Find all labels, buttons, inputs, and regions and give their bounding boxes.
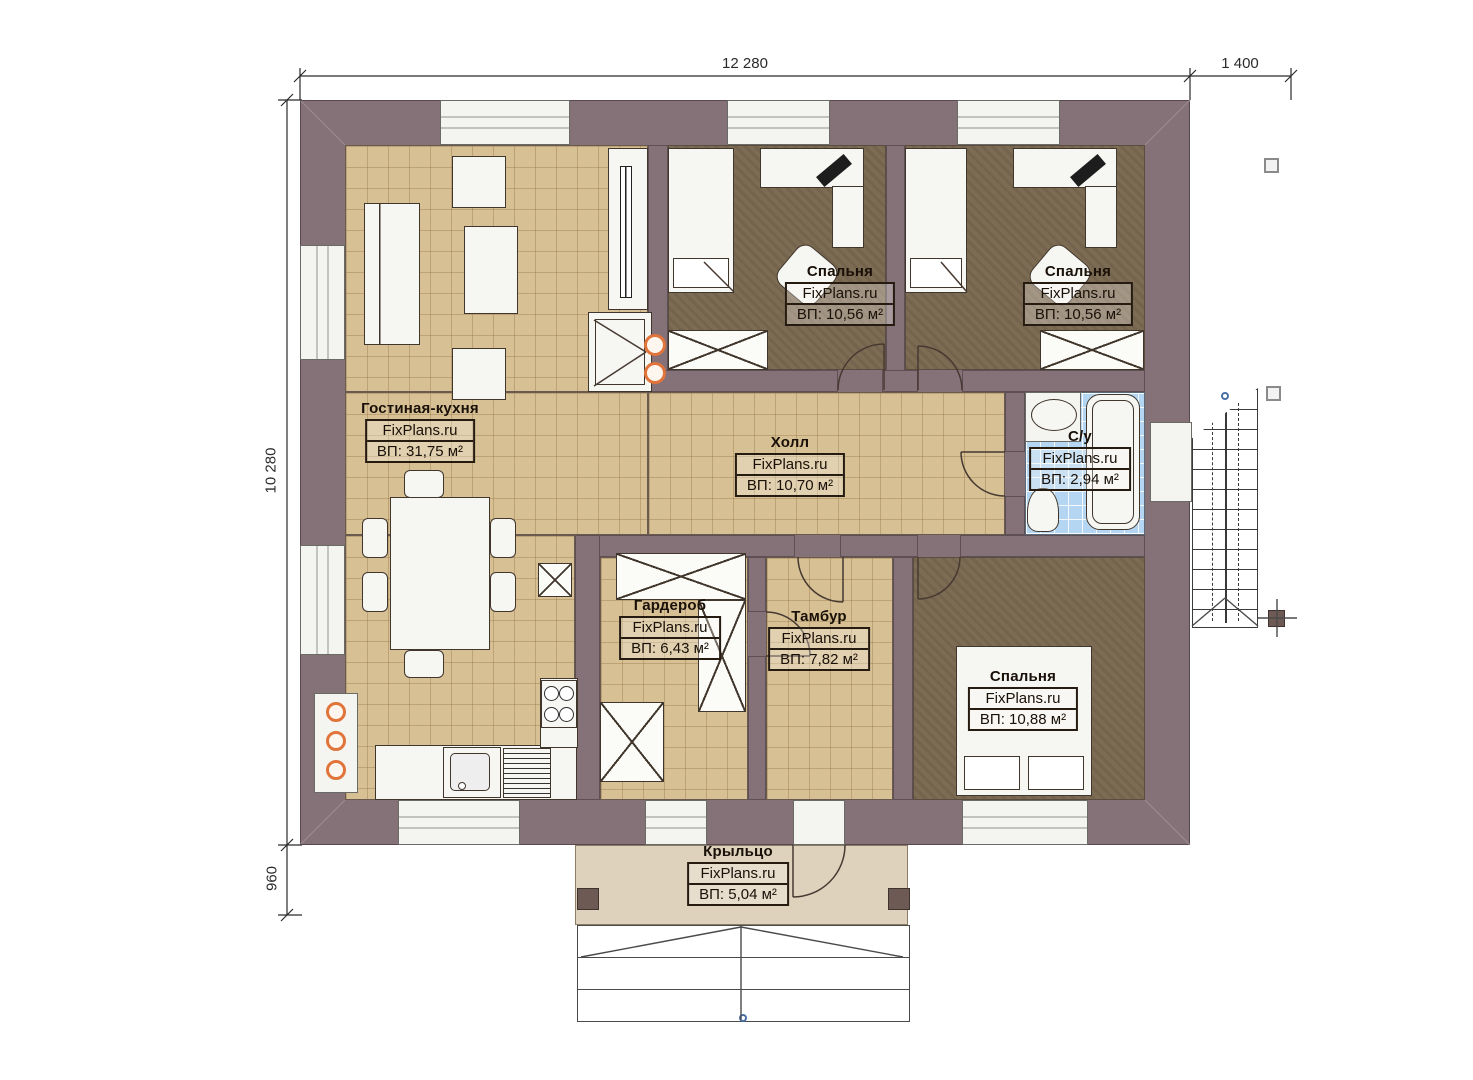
stove-burner: [544, 686, 559, 701]
bath-sink: [1031, 399, 1077, 431]
room-label-bedroom-2: Спальня FixPlans.ru ВП: 10,56 м²: [1023, 263, 1133, 326]
stove-burner: [559, 707, 574, 722]
porch-post-right: [888, 888, 910, 910]
armchair-bottom: [452, 348, 506, 400]
kitchen-sink: [443, 747, 501, 798]
room-label-bathroom: С/у FixPlans.ru ВП: 2,94 м²: [1029, 428, 1131, 491]
marker-square-stairs-bottom: [1268, 610, 1285, 627]
room-label-bedroom-1: Спальня FixPlans.ru ВП: 10,56 м²: [785, 263, 895, 326]
dim-width-total: 12 280: [722, 55, 768, 72]
fireplace: [588, 312, 652, 392]
room-name: Гардероб: [619, 597, 721, 614]
bed-3-pillow-right: [1028, 756, 1084, 790]
window-kitchen-bottom: [398, 800, 520, 845]
brand-watermark: FixPlans.ru: [770, 629, 868, 650]
wardrobe-cabinet-bottom: [600, 702, 664, 782]
window-vestibule-bottom: [645, 800, 707, 845]
room-area: ВП: 5,04 м²: [689, 885, 787, 904]
dining-chair-right-2: [490, 572, 516, 612]
window-living-left-1: [300, 245, 345, 360]
porch-post-left: [577, 888, 599, 910]
wall-bedrooms-hall-c: [962, 370, 1145, 392]
room-name: Холл: [735, 434, 845, 451]
room-info-box: FixPlans.ru ВП: 10,56 м²: [1023, 282, 1133, 326]
stove: [541, 680, 577, 728]
porch-steps: [577, 925, 910, 1022]
coffee-table: [464, 226, 518, 314]
room-label-vestibule: Тамбур FixPlans.ru ВП: 7,82 м²: [768, 608, 870, 671]
panel-circle-3: [326, 760, 346, 780]
bed-2-pillow: [910, 258, 962, 288]
wall-vestibule-bed3: [893, 557, 913, 800]
armchair-top: [452, 156, 506, 208]
room-area: ВП: 10,56 м²: [1025, 305, 1131, 324]
vestibule-floor: [766, 557, 893, 800]
room-area: ВП: 10,56 м²: [787, 305, 893, 324]
desk-2: [1013, 148, 1117, 188]
dining-chair-bottom: [404, 650, 444, 678]
room-name: Спальня: [1023, 263, 1133, 280]
bed-1-pillow: [673, 258, 729, 288]
brand-watermark: FixPlans.ru: [737, 455, 843, 476]
room-name: Спальня: [785, 263, 895, 280]
desk-1-return: [832, 186, 864, 248]
room-info-box: FixPlans.ru ВП: 2,94 м²: [1029, 447, 1131, 491]
room-label-wardrobe: Гардероб FixPlans.ru ВП: 6,43 м²: [619, 597, 721, 660]
room-info-box: FixPlans.ru ВП: 10,88 м²: [968, 687, 1078, 731]
dim-height-total: 10 280: [263, 448, 280, 494]
wall-bedrooms-hall-b: [882, 370, 918, 392]
brand-watermark: FixPlans.ru: [970, 689, 1076, 710]
window-living-left-2: [300, 545, 345, 655]
side-door-opening: [1150, 422, 1192, 502]
wall-bedrooms-hall-a: [648, 370, 838, 392]
steps-marker-dot: [739, 1014, 747, 1022]
wall-wardrobe-vestibule-b: [748, 656, 766, 800]
side-stairs: [1192, 388, 1258, 628]
panel-circle-2: [326, 731, 346, 751]
room-name: С/у: [1029, 428, 1131, 445]
room-name: Тамбур: [768, 608, 870, 625]
room-name: Гостиная-кухня: [361, 400, 479, 417]
floor-plan: 12 280 1 400 10 280 960 Гостиная-кухня F…: [0, 0, 1473, 1080]
wardrobe-cabinet-top: [616, 553, 746, 600]
wall-hall-south-b: [840, 535, 918, 557]
window-bed1-top: [727, 100, 830, 145]
stairs-marker-dot: [1221, 392, 1229, 400]
window-living-top: [440, 100, 570, 145]
brand-watermark: FixPlans.ru: [689, 864, 787, 885]
dim-stair-width: 1 400: [1221, 55, 1259, 72]
front-door-opening: [793, 800, 845, 845]
room-label-bedroom-3: Спальня FixPlans.ru ВП: 10,88 м²: [968, 668, 1078, 731]
room-area: ВП: 31,75 м²: [367, 442, 473, 461]
wardrobe-bed1: [668, 330, 768, 370]
dining-chair-left-1: [362, 518, 388, 558]
desk-1: [760, 148, 864, 188]
toilet: [1027, 488, 1059, 532]
room-area: ВП: 10,88 м²: [970, 710, 1076, 729]
tv-panel: [620, 166, 632, 298]
brand-watermark: FixPlans.ru: [787, 284, 893, 305]
stairs-guide-right: [1238, 403, 1239, 621]
desk-2-return: [1085, 186, 1117, 248]
room-info-box: FixPlans.ru ВП: 10,56 м²: [785, 282, 895, 326]
bed-1: [668, 148, 734, 293]
dining-chair-top: [404, 470, 444, 498]
room-info-box: FixPlans.ru ВП: 10,70 м²: [735, 453, 845, 497]
room-name: Крыльцо: [687, 843, 789, 860]
wall-wardrobe-vestibule-a: [748, 557, 766, 612]
room-name: Спальня: [968, 668, 1078, 685]
sofa: [364, 203, 420, 345]
dining-table: [390, 497, 490, 650]
brand-watermark: FixPlans.ru: [367, 421, 473, 442]
room-info-box: FixPlans.ru ВП: 5,04 м²: [687, 862, 789, 906]
room-label-living-kitchen: Гостиная-кухня FixPlans.ru ВП: 31,75 м²: [361, 400, 479, 463]
room-area: ВП: 2,94 м²: [1031, 470, 1129, 489]
room-area: ВП: 6,43 м²: [621, 639, 719, 658]
window-bed3-bottom: [962, 800, 1088, 845]
wall-hall-bath-b: [1005, 496, 1025, 535]
vent-circle-1: [644, 334, 666, 356]
wall-hall-south-c: [960, 535, 1145, 557]
window-bed2-top: [957, 100, 1060, 145]
stove-burner: [559, 686, 574, 701]
kitchen-faucet: [458, 782, 466, 790]
room-label-porch: Крыльцо FixPlans.ru ВП: 5,04 м²: [687, 843, 789, 906]
dining-chair-right-1: [490, 518, 516, 558]
dim-porch-depth: 960: [264, 862, 281, 896]
dining-chair-left-2: [362, 572, 388, 612]
brand-watermark: FixPlans.ru: [1031, 449, 1129, 470]
panel-circle-1: [326, 702, 346, 722]
marker-square-topright: [1264, 158, 1279, 173]
room-area: ВП: 7,82 м²: [770, 650, 868, 669]
bed-2: [905, 148, 967, 293]
wardrobe-bed2: [1040, 330, 1144, 370]
room-info-box: FixPlans.ru ВП: 31,75 м²: [365, 419, 475, 463]
bed-3-pillow-left: [964, 756, 1020, 790]
brand-watermark: FixPlans.ru: [1025, 284, 1131, 305]
vent-shaft: [538, 563, 572, 597]
room-area: ВП: 10,70 м²: [737, 476, 843, 495]
room-info-box: FixPlans.ru ВП: 6,43 м²: [619, 616, 721, 660]
wall-living-wardrobe: [575, 535, 600, 800]
wall-hall-bath-a: [1005, 392, 1025, 452]
brand-watermark: FixPlans.ru: [621, 618, 719, 639]
room-label-hall: Холл FixPlans.ru ВП: 10,70 м²: [735, 434, 845, 497]
stairs-center-line: [1225, 397, 1227, 623]
marker-square-stairs-top: [1266, 386, 1281, 401]
dish-rack: [503, 748, 551, 798]
stairs-guide-left: [1212, 422, 1213, 621]
room-info-box: FixPlans.ru ВП: 7,82 м²: [768, 627, 870, 671]
fireplace-inner: [595, 319, 645, 385]
kitchen-sink-basin: [450, 753, 490, 791]
vent-circle-2: [644, 362, 666, 384]
stove-burner: [544, 707, 559, 722]
